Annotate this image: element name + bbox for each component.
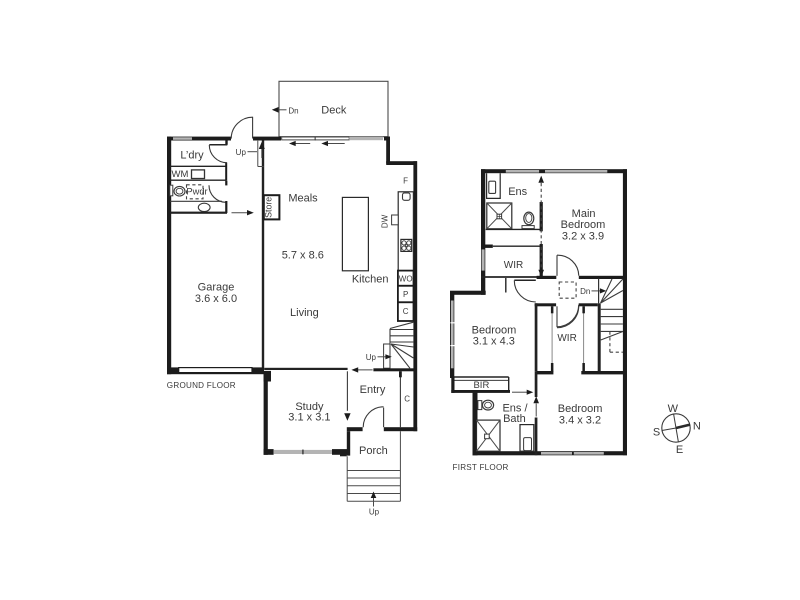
svg-text:L’dry: L’dry: [180, 149, 204, 161]
svg-text:WIR: WIR: [504, 260, 523, 271]
svg-text:FIRST FLOOR: FIRST FLOOR: [453, 463, 509, 472]
svg-text:Garage: Garage: [198, 281, 235, 293]
svg-text:Up: Up: [369, 508, 380, 517]
svg-text:Up: Up: [236, 148, 247, 157]
svg-text:W: W: [668, 403, 679, 415]
svg-text:Bath: Bath: [503, 413, 526, 425]
svg-text:P: P: [403, 290, 408, 299]
svg-text:DW: DW: [380, 214, 389, 228]
svg-text:GROUND FLOOR: GROUND FLOOR: [167, 381, 236, 390]
svg-text:3.4 x 3.2: 3.4 x 3.2: [559, 415, 601, 427]
svg-text:E: E: [676, 444, 683, 456]
svg-text:Deck: Deck: [321, 104, 347, 116]
svg-text:Pwdr: Pwdr: [186, 186, 207, 196]
svg-text:WO: WO: [399, 274, 413, 283]
svg-text:WM: WM: [172, 169, 189, 180]
svg-text:WIR: WIR: [557, 333, 576, 344]
svg-text:Meals: Meals: [288, 192, 318, 204]
svg-text:Main: Main: [572, 208, 596, 220]
svg-text:3.1 x 3.1: 3.1 x 3.1: [288, 411, 330, 423]
svg-text:BIR: BIR: [473, 380, 489, 391]
svg-text:Kitchen: Kitchen: [352, 273, 389, 285]
svg-text:C: C: [403, 307, 409, 316]
svg-text:Bedroom: Bedroom: [558, 403, 603, 415]
svg-text:Living: Living: [290, 307, 319, 319]
svg-text:F: F: [403, 177, 408, 186]
svg-text:Porch: Porch: [359, 445, 388, 457]
svg-text:5.7 x 8.6: 5.7 x 8.6: [282, 249, 324, 261]
svg-text:Dn: Dn: [288, 106, 298, 115]
svg-text:3.1 x 4.3: 3.1 x 4.3: [473, 335, 515, 347]
svg-text:3.6 x 6.0: 3.6 x 6.0: [195, 293, 237, 305]
svg-text:Up: Up: [366, 353, 377, 362]
svg-text:Dn: Dn: [580, 287, 590, 296]
svg-text:N: N: [693, 421, 701, 433]
svg-text:Entry: Entry: [360, 384, 386, 396]
svg-text:Ens: Ens: [508, 186, 527, 198]
svg-text:3.2 x 3.9: 3.2 x 3.9: [562, 230, 604, 242]
svg-text:C: C: [404, 395, 410, 404]
svg-text:Store: Store: [264, 197, 274, 218]
svg-text:Bedroom: Bedroom: [561, 219, 606, 231]
svg-text:S: S: [653, 426, 660, 438]
